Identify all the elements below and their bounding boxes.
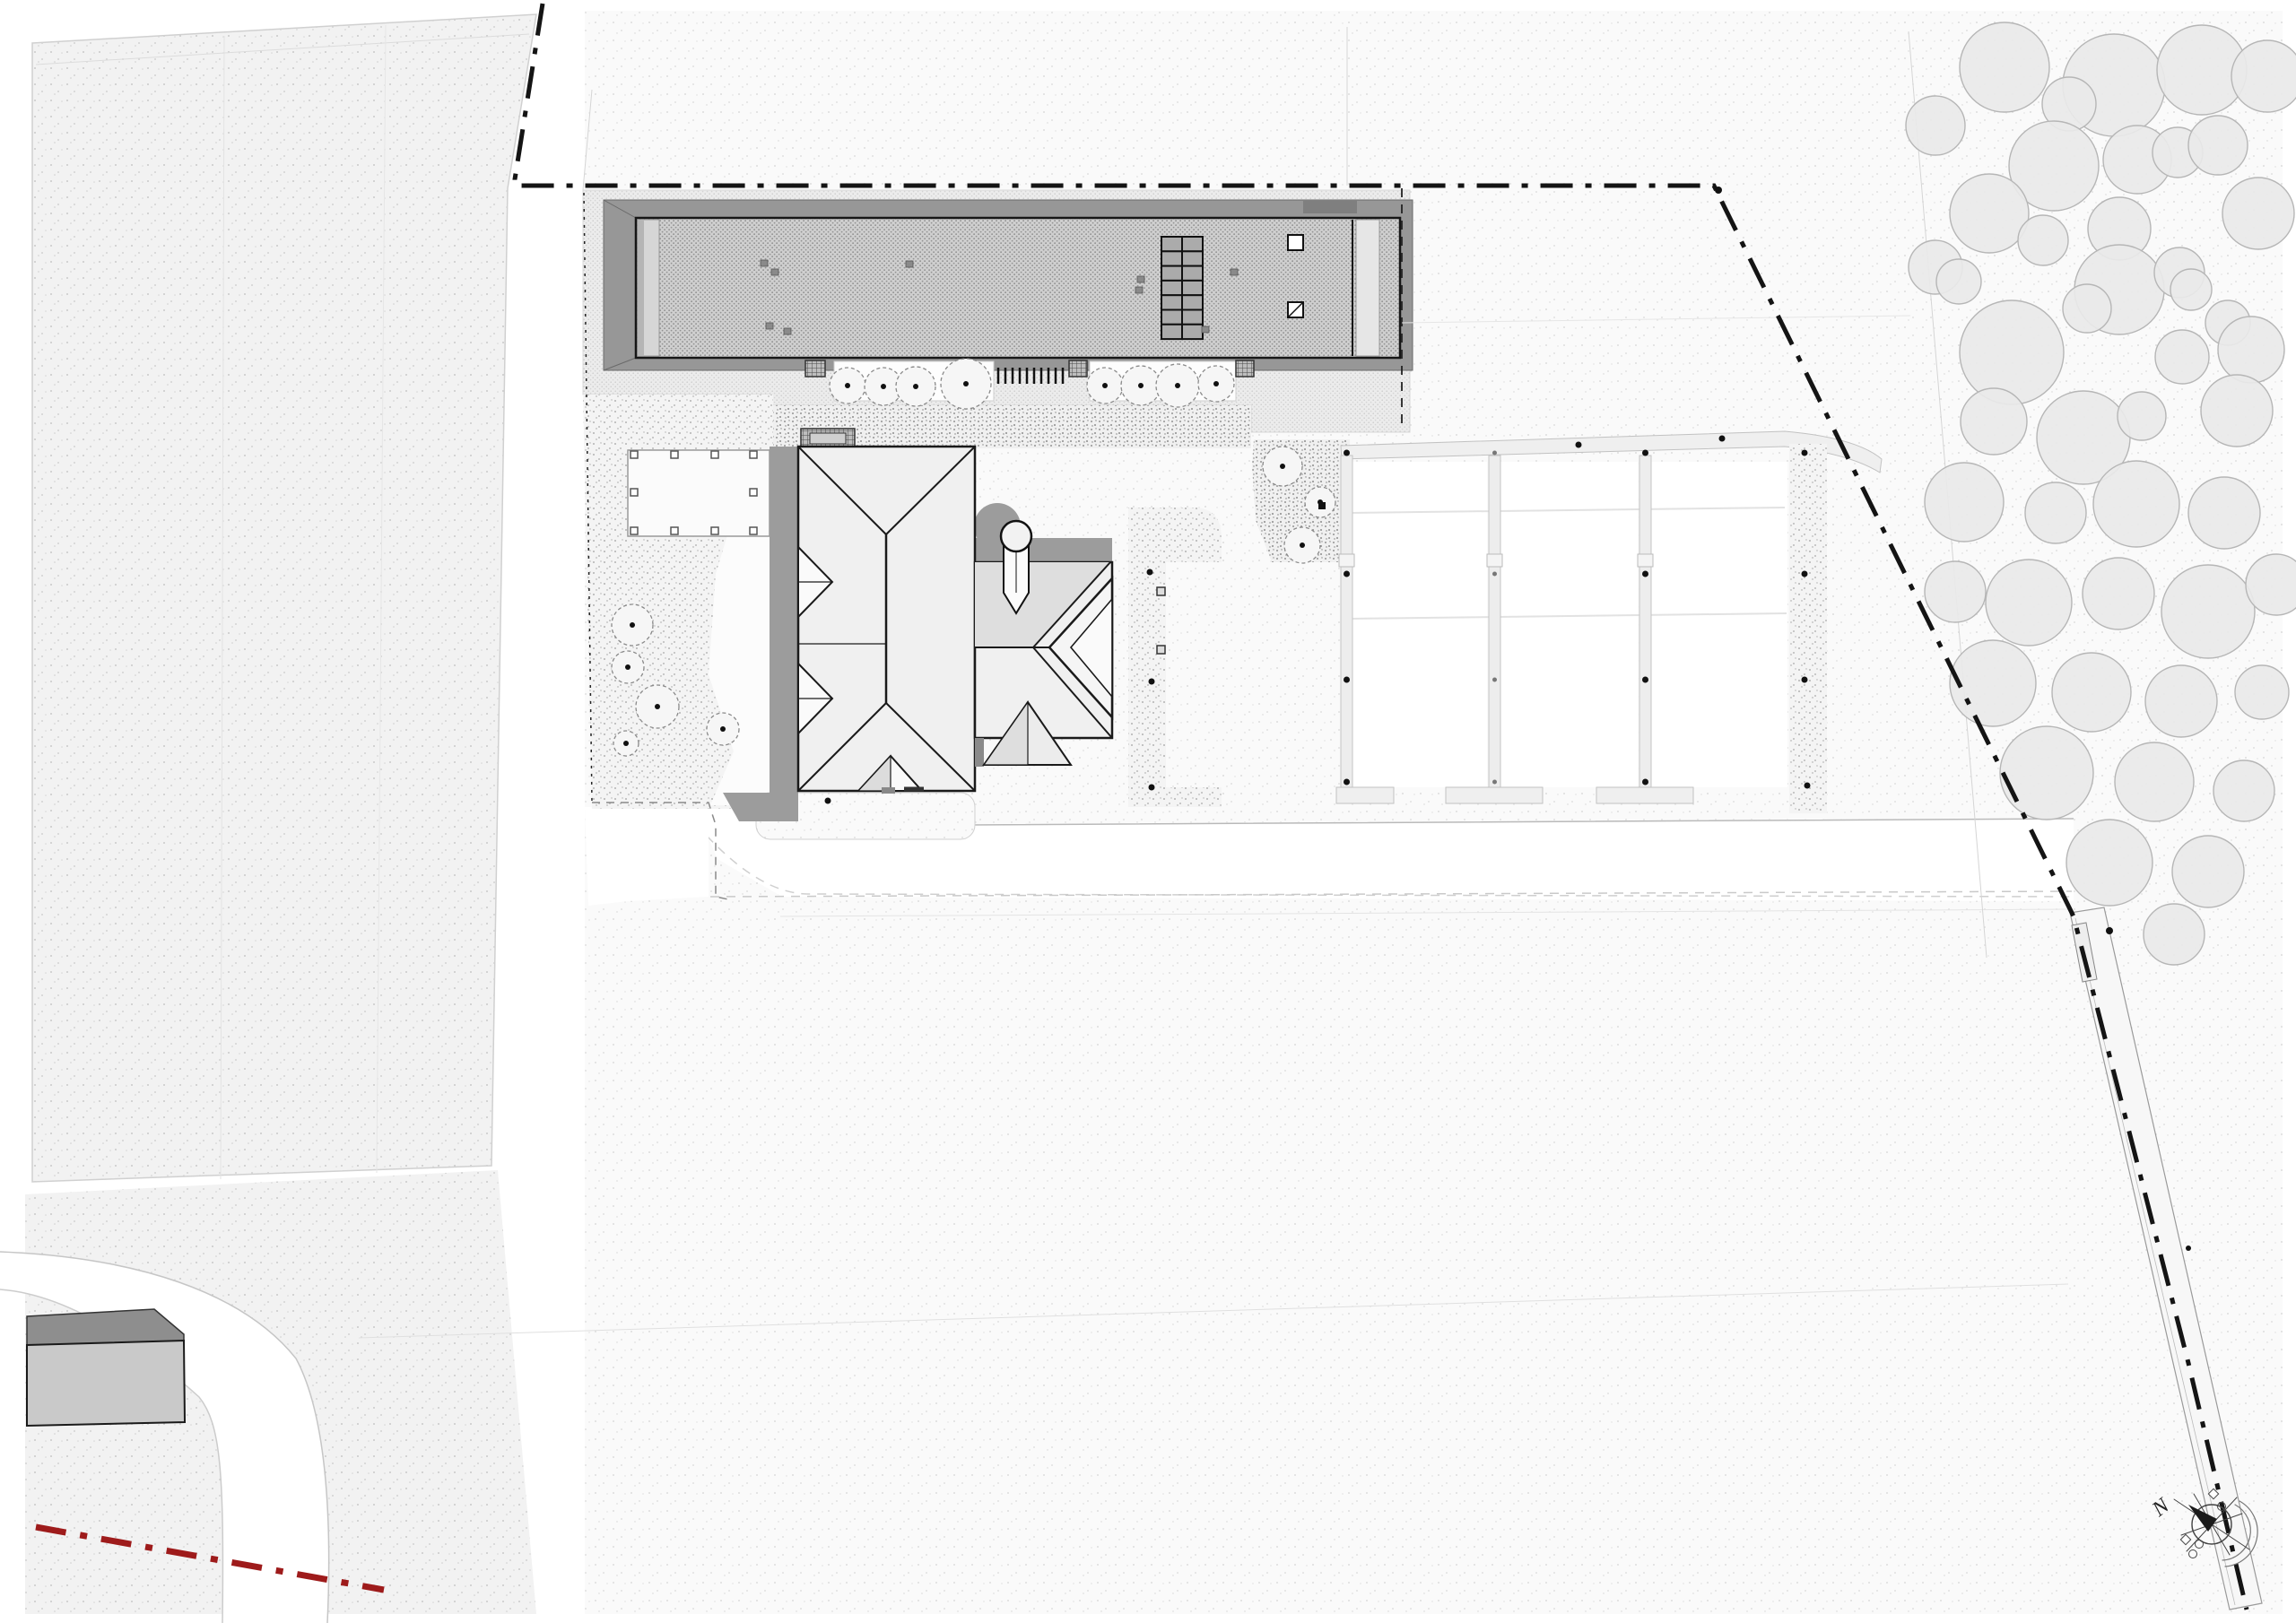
tree-canopy — [2144, 904, 2205, 965]
fence-post — [1492, 572, 1497, 577]
skylight — [1182, 281, 1203, 295]
shrub-center — [881, 384, 886, 389]
turret — [1001, 521, 1031, 551]
skylight — [1182, 325, 1203, 339]
skylight — [1161, 281, 1182, 295]
skylight — [1182, 266, 1203, 281]
roof-vent — [906, 261, 913, 267]
tree-canopy — [2188, 116, 2248, 175]
roof-vent — [761, 260, 768, 266]
pergola-post — [631, 451, 638, 458]
shrub-center — [1213, 381, 1219, 386]
tree-canopy — [2235, 665, 2289, 719]
tree-canopy — [2170, 269, 2212, 310]
gate-cap — [1446, 787, 1543, 803]
skylight — [1161, 325, 1182, 339]
fence-post — [1344, 450, 1350, 456]
pergola-post — [750, 489, 757, 496]
long-building — [604, 200, 1413, 370]
tree-canopy — [2093, 461, 2179, 547]
fence-post — [1344, 571, 1350, 577]
tree-canopy — [2052, 653, 2131, 732]
skylight — [1161, 266, 1182, 281]
shrub-center — [630, 622, 635, 628]
gate — [1487, 554, 1502, 567]
tree-canopy — [2201, 375, 2273, 447]
grating — [1069, 360, 1087, 377]
grating — [805, 360, 825, 377]
post — [1147, 569, 1153, 576]
pergola-post — [671, 527, 678, 534]
tree-canopy — [2188, 477, 2260, 549]
fence-post — [1492, 678, 1497, 682]
fence-post — [1642, 677, 1648, 683]
tree-canopy — [1925, 463, 2004, 542]
tree-canopy — [1960, 300, 2064, 404]
pergola-post — [750, 451, 757, 458]
post — [1149, 785, 1155, 791]
tree-canopy — [2083, 558, 2154, 629]
shrub-center — [655, 704, 660, 709]
skylight — [1182, 295, 1203, 309]
shrub-center — [963, 381, 969, 386]
pergola-post — [671, 451, 678, 458]
roof-vent — [1137, 276, 1144, 282]
house-shadow — [770, 447, 798, 793]
fence-post — [1344, 779, 1350, 785]
fence-post — [1492, 451, 1497, 456]
outbuilding — [27, 1309, 185, 1426]
tree-canopy — [1936, 259, 1981, 304]
shrub-center — [1102, 383, 1108, 388]
tree-canopy — [2213, 760, 2274, 821]
shrub-center — [1138, 383, 1144, 388]
fence-post — [1642, 779, 1648, 785]
east-hedge-strip — [1789, 444, 1827, 813]
gate-cap — [1596, 787, 1693, 803]
tree-canopy — [1960, 22, 2049, 112]
tree-canopy — [1925, 561, 1986, 622]
skylight — [1161, 251, 1182, 265]
skylight — [1182, 237, 1203, 251]
pergola-post — [631, 489, 638, 496]
post — [1802, 677, 1808, 683]
tree-canopy — [2063, 284, 2111, 333]
tree-canopy — [2115, 742, 2194, 821]
skylight-grid — [1161, 237, 1203, 339]
fence-post — [1492, 780, 1497, 785]
skylight — [1161, 310, 1182, 325]
tree-canopy — [2118, 392, 2166, 440]
roof-vent — [784, 328, 791, 334]
fence — [1341, 456, 1352, 789]
tree-canopy — [1986, 560, 2072, 646]
tree-canopy — [1906, 96, 1965, 155]
post — [1149, 679, 1155, 685]
skylight — [1161, 237, 1182, 251]
tree-canopy — [1950, 174, 2029, 253]
pergola-post — [750, 527, 757, 534]
building-east-bay — [1356, 220, 1379, 356]
fence-post — [1642, 450, 1648, 456]
tree-canopy — [2025, 482, 2086, 543]
post — [1802, 450, 1808, 456]
shrub-center — [913, 384, 918, 389]
roof-vent — [766, 323, 773, 329]
fence — [1639, 456, 1651, 789]
pergola — [628, 450, 770, 536]
tree-canopy — [2172, 836, 2244, 907]
roof-vent — [1202, 326, 1209, 333]
tree-canopy — [2218, 317, 2284, 383]
gate — [1638, 554, 1653, 567]
pergola-post — [711, 527, 718, 534]
tree-canopy — [2018, 215, 2068, 265]
tree-canopy — [2000, 726, 2093, 820]
tree-canopy — [2145, 665, 2217, 737]
skylight — [1182, 251, 1203, 265]
tree-canopy — [2161, 565, 2255, 658]
roof-vent — [1231, 269, 1238, 275]
shrub-center — [625, 664, 631, 670]
pergola-post — [631, 527, 638, 534]
site-plan-drawing: N — [0, 0, 2296, 1623]
field-top-left — [32, 14, 536, 1182]
site-plan-page: N — [0, 0, 2296, 1623]
tree-canopy — [1961, 388, 2027, 455]
grating — [1236, 360, 1254, 377]
gate-cap — [1336, 787, 1394, 803]
skylight — [1161, 295, 1182, 309]
shrub-center — [1280, 464, 1285, 469]
roof-vent — [1135, 287, 1143, 293]
tree-canopy — [2155, 330, 2209, 384]
tree-canopy — [2066, 820, 2152, 906]
tree-canopy — [2231, 40, 2296, 112]
shrub-center — [720, 726, 726, 732]
tree-canopy — [2222, 178, 2294, 249]
roof-vent — [771, 269, 778, 275]
pergola-post — [711, 451, 718, 458]
fence-post — [1344, 677, 1350, 683]
fence-post — [1642, 571, 1648, 577]
fence — [1489, 456, 1500, 789]
post — [1805, 783, 1811, 789]
shrub-center — [845, 383, 850, 388]
shrub-center — [1175, 383, 1180, 388]
post — [1802, 571, 1808, 577]
skylight — [1182, 310, 1203, 325]
rooflight — [1288, 235, 1303, 250]
tree-canopy — [1950, 640, 2036, 726]
gate — [1339, 554, 1354, 567]
shrub-center — [623, 741, 629, 746]
shrub-center — [1300, 542, 1305, 548]
